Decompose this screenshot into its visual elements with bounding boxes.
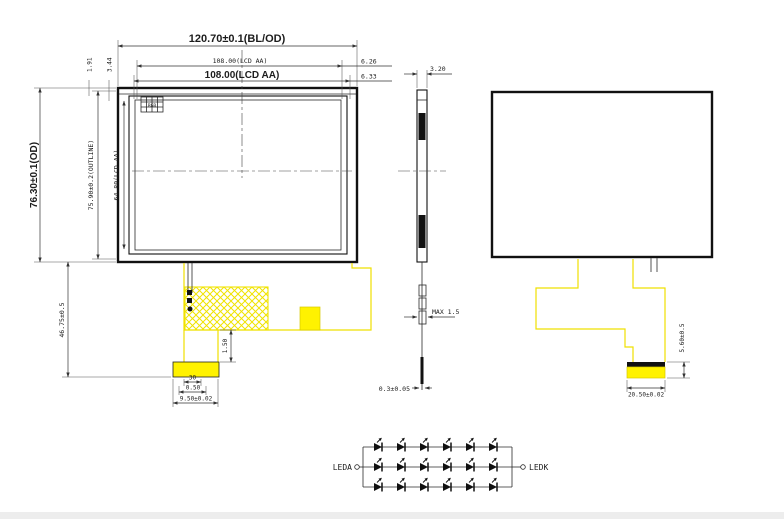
dim-stiffener-height: 5.60±0.5 <box>679 323 686 352</box>
fpc-hatched-area <box>185 287 268 330</box>
led-symbol <box>489 458 497 472</box>
side-connector-seg <box>419 285 426 296</box>
dim-right-top: 6.26 <box>361 58 377 66</box>
dim-aa-height: 64.80(LCD AA) <box>113 150 121 201</box>
led-array <box>374 438 497 492</box>
front-view: RGB <box>118 50 371 377</box>
led-symbol <box>466 478 474 492</box>
led-symbol <box>374 478 382 492</box>
side-connector-seg <box>419 298 426 309</box>
dim-film: 0.3±0.05 <box>379 385 410 393</box>
side-view: 3.20 MAX 1.5 0.3±0.05 <box>379 65 460 393</box>
side-tape-upper <box>419 113 426 140</box>
led-symbol <box>374 438 382 452</box>
side-connector-seg <box>419 311 426 324</box>
anode-terminal <box>355 465 360 470</box>
led-symbol <box>489 438 497 452</box>
fpc-pad <box>300 307 320 330</box>
back-stiffener-bar <box>627 362 665 367</box>
led-symbol <box>489 478 497 492</box>
dim-corner-a: 1.91 <box>87 57 94 72</box>
led-symbol <box>374 458 382 472</box>
dim-pitch: 0.50 <box>186 385 201 392</box>
led-symbol <box>397 458 405 472</box>
dim-right-bottom: 6.33 <box>361 73 377 81</box>
pin-marker <box>187 290 192 295</box>
dim-fpc-drop: 46.75±0.5 <box>58 302 66 337</box>
dim-connector-max: MAX 1.5 <box>432 308 459 316</box>
back-stiffener <box>627 367 665 378</box>
outline-drawing-svg: RGB 120.70±0.1(BL/OD) <box>0 0 784 519</box>
led-symbol <box>420 438 428 452</box>
cathode-terminal <box>521 465 526 470</box>
drawing-sheet: RGB 120.70±0.1(BL/OD) <box>0 0 784 519</box>
front-bezel-outline <box>129 96 347 254</box>
led-symbol <box>443 438 451 452</box>
led-symbol <box>420 478 428 492</box>
led-symbol <box>443 458 451 472</box>
dim-outline-height: 75.90±0.2(OUTLINE) <box>87 140 95 210</box>
led-anode-label: LEDA <box>333 463 352 472</box>
dim-aa-width: 108.00(LCD AA) <box>205 70 280 81</box>
dim-corner-b: 3.44 <box>107 57 114 72</box>
side-tape-lower <box>419 215 426 248</box>
pin-marker <box>187 298 192 303</box>
back-view: 5.60±0.5 20.50±0.02 <box>492 92 712 399</box>
led-symbol <box>466 438 474 452</box>
dim-od-width: 120.70±0.1(BL/OD) <box>189 33 286 45</box>
dim-neck: 1.50 <box>222 338 229 353</box>
corner-pixel-detail: RGB <box>141 97 163 112</box>
led-symbol <box>420 458 428 472</box>
dim-aa-width-small: 108.00(LCD AA) <box>213 57 268 65</box>
corner-detail-label: RGB <box>148 103 157 109</box>
dim-tail-width: 9.50±0.02 <box>180 396 213 403</box>
back-outer-outline <box>492 92 712 257</box>
fpc-tail-back <box>536 259 665 378</box>
front-active-area <box>135 100 341 250</box>
led-symbol <box>443 478 451 492</box>
dim-pins: 30 <box>189 375 197 382</box>
sheet-edge <box>0 512 784 519</box>
fpc-tail-front <box>173 263 371 377</box>
led-symbol <box>397 478 405 492</box>
led-symbol <box>397 438 405 452</box>
front-outer-outline <box>118 88 357 262</box>
led-cathode-label: LEDK <box>529 463 548 472</box>
led-circuit: LEDA LEDK <box>333 438 549 492</box>
pin1-dot <box>188 307 193 312</box>
led-symbol <box>466 458 474 472</box>
dim-thickness: 3.20 <box>430 65 446 73</box>
dim-od-height: 76.30±0.1(OD) <box>29 142 40 208</box>
side-stiffener-strip <box>421 357 424 384</box>
dim-stiffener-width: 20.50±0.02 <box>628 392 665 399</box>
